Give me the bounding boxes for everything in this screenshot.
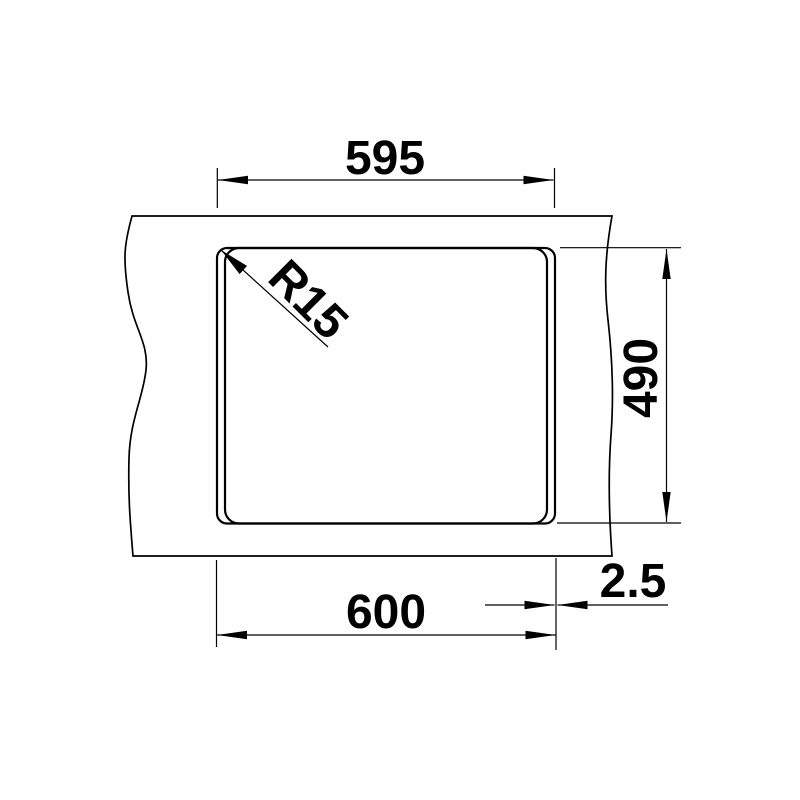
countertop-outline — [125, 216, 613, 556]
arrowhead-right-icon — [524, 176, 554, 184]
dimension-top-width: 595 — [217, 132, 554, 208]
arrowhead-left-icon — [218, 176, 248, 184]
arrowhead-right-icon — [526, 631, 556, 639]
arrowhead-left-icon — [558, 601, 588, 609]
arrowhead-up-icon — [662, 249, 670, 279]
sink-dimension-diagram: 595 490 600 2.5 — [0, 0, 800, 800]
dimension-label-top-width: 595 — [345, 132, 425, 185]
dimension-right-height: 490 — [557, 248, 681, 523]
radius-callout: R15 — [221, 250, 358, 350]
dimension-label-edge-offset: 2.5 — [600, 555, 667, 608]
arrowhead-left-icon — [217, 631, 247, 639]
arrowhead-right-icon — [525, 601, 555, 609]
arrowhead-down-icon — [662, 492, 670, 522]
radius-label: R15 — [258, 250, 358, 350]
dimension-label-bottom-width: 600 — [346, 586, 426, 639]
dimension-bottom-width: 600 — [217, 558, 557, 650]
technical-drawing-canvas: 595 490 600 2.5 — [0, 0, 800, 800]
dimension-edge-offset: 2.5 — [485, 555, 668, 609]
dimension-label-right-height: 490 — [615, 338, 668, 418]
